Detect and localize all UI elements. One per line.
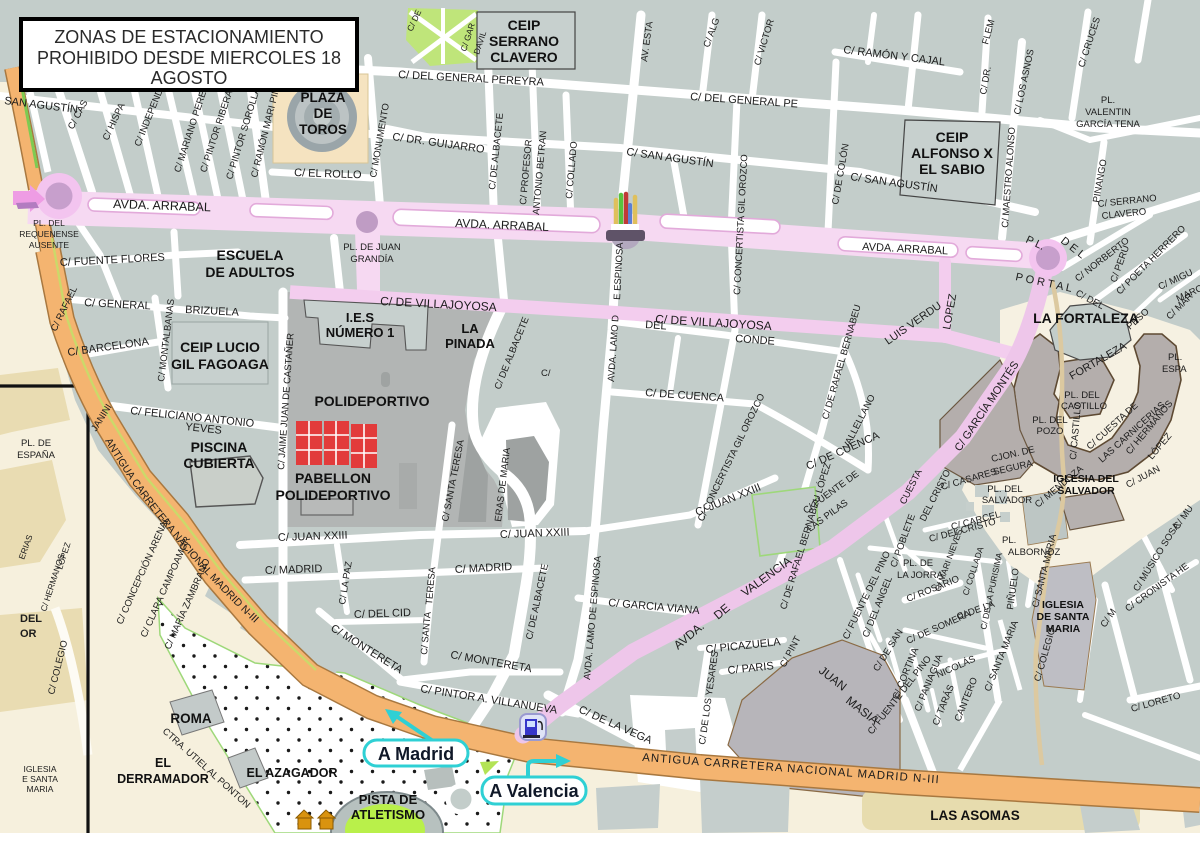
svg-text:PABELLON: PABELLON	[295, 470, 371, 486]
svg-text:DE ADULTOS: DE ADULTOS	[205, 264, 294, 280]
svg-text:ALFONSO X: ALFONSO X	[911, 145, 993, 161]
svg-text:PLAZA: PLAZA	[301, 90, 346, 105]
svg-text:AGOSTO: AGOSTO	[151, 68, 228, 88]
svg-text:PL.: PL.	[1002, 535, 1016, 546]
svg-text:PL. DEL: PL. DEL	[1032, 415, 1067, 426]
svg-text:SALVADOR: SALVADOR	[1057, 485, 1115, 497]
svg-text:DE: DE	[314, 106, 333, 121]
svg-text:CEIP: CEIP	[508, 17, 541, 33]
svg-text:PINADA: PINADA	[445, 336, 495, 351]
svg-text:SERRANO: SERRANO	[489, 33, 559, 49]
svg-text:DEL: DEL	[20, 613, 42, 625]
svg-text:C/ DEL CID: C/ DEL CID	[354, 607, 411, 621]
svg-text:ROMA: ROMA	[170, 711, 211, 726]
svg-text:PL. DE: PL. DE	[903, 558, 933, 569]
svg-text:GARCÍA TENA: GARCÍA TENA	[1076, 119, 1140, 130]
svg-text:PISTA DE: PISTA DE	[359, 792, 418, 807]
svg-text:LA: LA	[461, 321, 479, 336]
svg-text:AUSENTE: AUSENTE	[29, 240, 69, 250]
svg-text:IGLESIA DEL: IGLESIA DEL	[1053, 473, 1119, 485]
svg-text:C/ EL ROLLO: C/ EL ROLLO	[294, 167, 362, 181]
svg-text:GIL FAGOAGA: GIL FAGOAGA	[171, 356, 269, 372]
svg-text:C/ MADRID: C/ MADRID	[265, 563, 323, 577]
svg-text:ESPA: ESPA	[1162, 364, 1187, 375]
svg-text:EL SABIO: EL SABIO	[919, 161, 985, 177]
svg-text:CUBIERTA: CUBIERTA	[183, 455, 254, 471]
svg-text:POLIDEPORTIVO: POLIDEPORTIVO	[314, 393, 429, 409]
svg-text:E SANTA: E SANTA	[22, 774, 58, 784]
svg-text:IGLESIA: IGLESIA	[23, 764, 56, 774]
svg-text:PL.: PL.	[1101, 95, 1115, 106]
svg-text:GRANDÍA: GRANDÍA	[350, 254, 394, 265]
svg-text:ATLETISMO: ATLETISMO	[351, 807, 425, 822]
svg-text:ESCUELA: ESCUELA	[217, 247, 284, 263]
svg-text:C/ JUAN XXIII: C/ JUAN XXIII	[500, 527, 570, 541]
svg-text:PL. DEL: PL. DEL	[33, 218, 65, 228]
svg-text:PISCINA: PISCINA	[191, 439, 248, 455]
svg-text:OR: OR	[20, 628, 37, 640]
svg-text:DE SANTA: DE SANTA	[1037, 611, 1090, 623]
svg-text:REQUENENSE: REQUENENSE	[19, 229, 79, 239]
svg-text:PL. DEL: PL. DEL	[987, 484, 1022, 495]
svg-text:PL.: PL.	[1168, 352, 1182, 363]
svg-text:A Valencia: A Valencia	[489, 781, 579, 801]
svg-text:CLAVERO: CLAVERO	[490, 49, 558, 65]
svg-text:VALENTIN: VALENTIN	[1085, 107, 1131, 118]
svg-text:I.E.S: I.E.S	[346, 310, 375, 325]
svg-text:ZONAS DE ESTACIONAMIENTO: ZONAS DE ESTACIONAMIENTO	[54, 27, 323, 47]
svg-text:PROHIBIDO DESDE MIERCOLES 18: PROHIBIDO DESDE MIERCOLES 18	[37, 48, 341, 68]
svg-text:IGLESIA: IGLESIA	[1042, 599, 1084, 611]
svg-text:PL. DE: PL. DE	[21, 438, 51, 449]
svg-text:LA FORTALEZA: LA FORTALEZA	[1033, 310, 1139, 326]
svg-text:MARIA: MARIA	[1046, 623, 1081, 635]
svg-text:DEL: DEL	[645, 319, 667, 332]
svg-text:LAS ASOMAS: LAS ASOMAS	[930, 808, 1020, 823]
svg-text:POZO: POZO	[1037, 426, 1064, 437]
svg-text:CASTILLO: CASTILLO	[1061, 401, 1107, 412]
svg-text:EL AZAGADOR: EL AZAGADOR	[247, 766, 338, 780]
svg-text:C/ JUAN XXIII: C/ JUAN XXIII	[278, 530, 348, 544]
svg-text:SALVADOR: SALVADOR	[982, 495, 1032, 506]
svg-text:CEIP: CEIP	[936, 129, 969, 145]
svg-text:POLIDEPORTIVO: POLIDEPORTIVO	[275, 487, 390, 503]
svg-text:ESPAÑA: ESPAÑA	[17, 450, 56, 461]
svg-text:CEIP LUCIO: CEIP LUCIO	[180, 339, 260, 355]
svg-text:PL. DEL: PL. DEL	[1064, 390, 1099, 401]
svg-text:NÚMERO 1: NÚMERO 1	[326, 325, 395, 340]
svg-text:C/: C/	[541, 368, 551, 379]
svg-text:EL: EL	[155, 756, 171, 770]
svg-text:DERRAMADOR: DERRAMADOR	[117, 772, 209, 786]
svg-text:MARIA: MARIA	[27, 784, 54, 794]
svg-text:TOROS: TOROS	[299, 122, 347, 137]
svg-text:PL. DE JUAN: PL. DE JUAN	[343, 242, 401, 253]
svg-text:A Madrid: A Madrid	[378, 744, 454, 764]
